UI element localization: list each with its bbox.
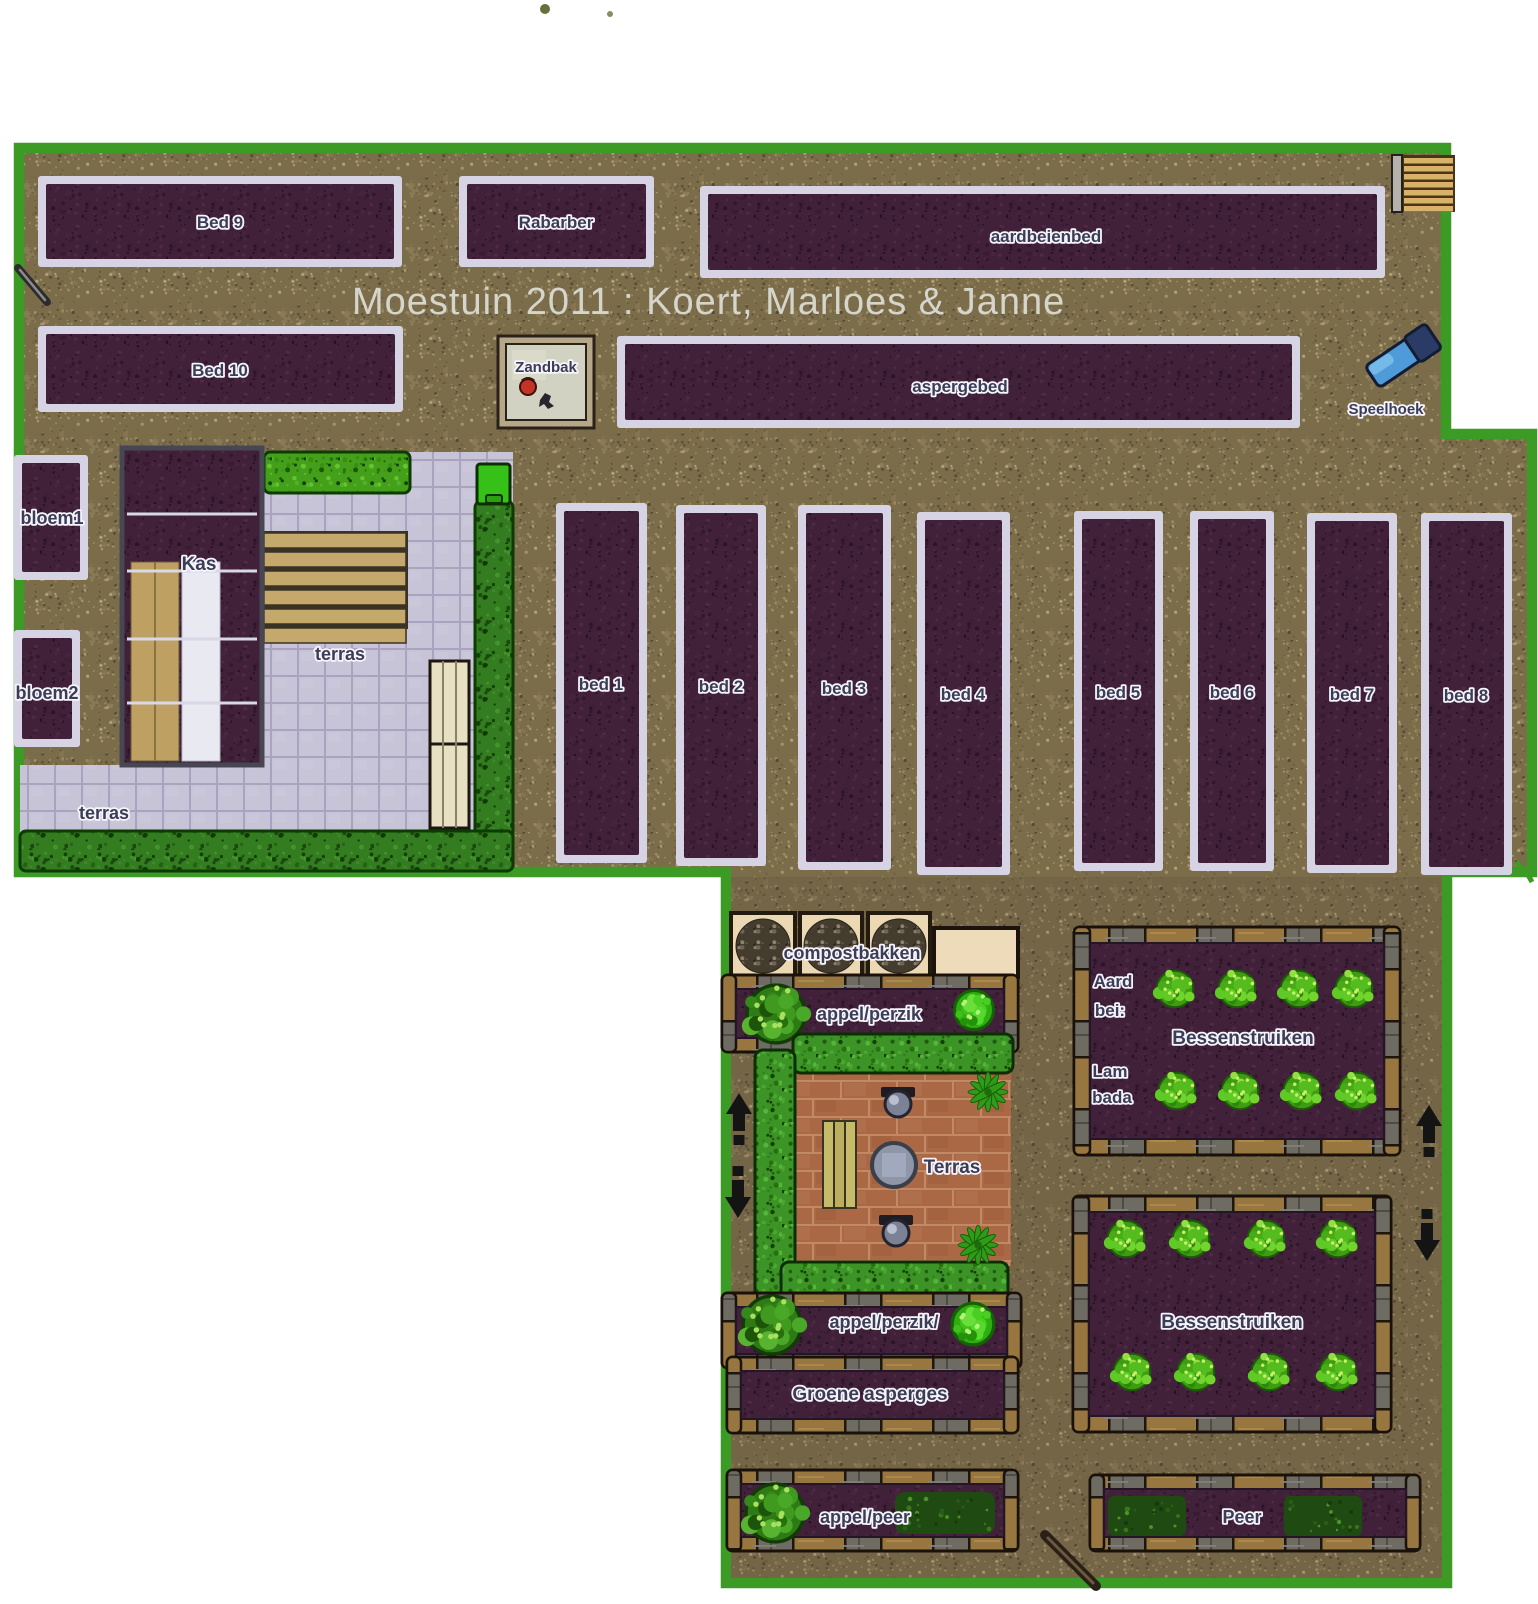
svg-text:Bessenstruiken: Bessenstruiken [1161,1312,1303,1333]
svg-text:Rabarber: Rabarber [519,213,594,232]
svg-text:bed 5: bed 5 [1096,683,1140,702]
svg-text:Bessenstruiken: Bessenstruiken [1172,1028,1314,1049]
svg-text:bada: bada [1092,1088,1132,1107]
svg-text:compostbakken: compostbakken [783,943,920,963]
svg-text:bed 1: bed 1 [579,675,623,694]
svg-text:appel/perzik/: appel/perzik/ [829,1312,938,1332]
svg-text:aspergebed: aspergebed [912,377,1007,396]
svg-text:Aard: Aard [1094,972,1133,991]
svg-text:aardbeienbed: aardbeienbed [991,227,1102,246]
svg-text:Groene asperges: Groene asperges [792,1384,947,1405]
svg-text:Speelhoek: Speelhoek [1348,401,1424,418]
svg-text:Kas: Kas [182,554,217,575]
svg-text:appel/perzik: appel/perzik [817,1004,922,1024]
svg-text:bed 4: bed 4 [941,685,986,704]
svg-text:bloem2: bloem2 [15,683,78,703]
svg-text:bed 3: bed 3 [822,679,866,698]
svg-text:terras: terras [315,644,365,664]
svg-text:Moestuin 2011 : Koert, Marloes: Moestuin 2011 : Koert, Marloes & Janne [352,281,1065,323]
svg-text:Terras: Terras [924,1157,981,1178]
svg-text:bei:: bei: [1095,1001,1125,1020]
svg-text:Lam: Lam [1093,1062,1128,1081]
svg-text:Peer: Peer [1222,1507,1261,1527]
svg-text:Bed 9: Bed 9 [197,213,243,232]
svg-text:terras: terras [79,803,129,823]
svg-text:Zandbak: Zandbak [515,359,577,376]
svg-text:bed 7: bed 7 [1330,685,1374,704]
svg-text:bed 8: bed 8 [1444,686,1488,705]
svg-text:bloem1: bloem1 [20,508,83,528]
svg-text:bed 2: bed 2 [699,677,743,696]
svg-text:Bed 10: Bed 10 [192,361,248,380]
svg-text:appel/peer: appel/peer [820,1507,910,1527]
svg-text:bed 6: bed 6 [1210,683,1254,702]
